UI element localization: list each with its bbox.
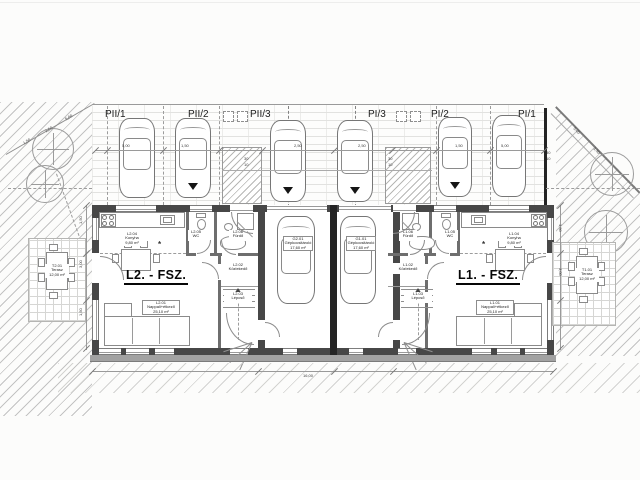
window bbox=[155, 348, 174, 355]
terrace-door-opening-l2 bbox=[92, 253, 99, 283]
dim-label: 2,50 bbox=[294, 143, 302, 148]
chair bbox=[49, 292, 58, 299]
entry-walkway-left bbox=[222, 147, 262, 204]
party-wall-center bbox=[330, 205, 337, 355]
door-threshold bbox=[230, 210, 253, 211]
terrace-label-t1: T1.01 Terasz 12,00 m² bbox=[575, 268, 599, 282]
partition bbox=[218, 256, 221, 264]
lamp-symbol: * bbox=[482, 241, 485, 249]
window bbox=[116, 205, 156, 212]
chair bbox=[579, 248, 588, 255]
dim-label: 3,00 bbox=[558, 268, 563, 276]
window bbox=[92, 218, 99, 240]
stove-burner bbox=[533, 221, 538, 226]
window bbox=[283, 348, 297, 355]
room-label-hall-l1: L1.02 Közlekedő bbox=[392, 263, 424, 274]
room-name: Közlekedő bbox=[392, 267, 424, 271]
partition bbox=[214, 212, 217, 253]
dim-label: 2,50 bbox=[358, 143, 366, 148]
direction-arrow-icon bbox=[283, 187, 293, 194]
parking-bay-divider bbox=[490, 106, 491, 205]
paving-marker bbox=[223, 111, 234, 122]
stove-burner bbox=[109, 221, 114, 226]
direction-arrow-icon bbox=[188, 183, 198, 190]
dim-label: 1,50 bbox=[558, 224, 563, 232]
parking-bay-divider bbox=[219, 106, 220, 205]
room-label-kitchen-l1: L1.04 Konyha 9,80 m² bbox=[499, 232, 529, 246]
car-topview bbox=[492, 115, 526, 197]
car-windshield bbox=[342, 129, 368, 135]
room-name: WC bbox=[442, 234, 458, 238]
toilet-tank bbox=[196, 213, 206, 218]
room-area: 25,10 m² bbox=[477, 310, 513, 314]
stove-burner bbox=[109, 215, 114, 220]
room-label-living-l2: L2.01 Nappali+étkező 25,10 m² bbox=[142, 300, 180, 315]
dim-label: 1,50 bbox=[455, 143, 463, 148]
car-topview bbox=[337, 120, 373, 202]
sofa-cushion-line bbox=[511, 318, 512, 344]
car-topview-garage bbox=[340, 216, 376, 304]
room-area: 9,80 m² bbox=[499, 241, 529, 245]
boundary-wall-right bbox=[544, 108, 547, 205]
sofa-cushion-line bbox=[132, 318, 133, 344]
room-label-kitchen-l2: L2.04 Konyha 9,80 m² bbox=[117, 232, 147, 246]
parking-space-label-pi2: PI/2 bbox=[431, 109, 449, 120]
window bbox=[472, 348, 491, 355]
chair bbox=[153, 254, 160, 263]
window bbox=[547, 218, 554, 240]
parking-space-label-pii3: PII/3 bbox=[250, 109, 271, 120]
unit-label-l1: L1. - FSZ. bbox=[456, 268, 520, 285]
window bbox=[497, 348, 520, 355]
partition bbox=[425, 256, 428, 264]
dim-label: 1,50 bbox=[78, 216, 83, 224]
paving-marker bbox=[396, 111, 407, 122]
car-windshield bbox=[345, 226, 371, 233]
driveway-top-edge bbox=[92, 104, 544, 105]
terrain-hatch-bottom bbox=[58, 363, 640, 393]
kitchen-sink-basin bbox=[474, 217, 483, 223]
dim-chain-bottom bbox=[92, 371, 554, 372]
room-area: 17,60 m² bbox=[284, 246, 312, 250]
room-area: 9,80 m² bbox=[117, 241, 147, 245]
room-name: Fürdő bbox=[229, 234, 247, 238]
garage-side-door-opening bbox=[393, 320, 400, 340]
room-area: 25,10 m² bbox=[143, 310, 179, 314]
car-topview bbox=[438, 117, 472, 197]
partition bbox=[186, 253, 196, 256]
paving-marker bbox=[410, 111, 421, 122]
sofa-body bbox=[456, 316, 542, 346]
room-area: 12,00 m² bbox=[45, 273, 69, 277]
partition bbox=[388, 253, 408, 256]
parking-bay-divider bbox=[163, 106, 164, 205]
floor-plan-canvas: 1,50 1,50 5,00 5,00 1,50 30 10 PII/1 PII… bbox=[0, 0, 640, 480]
car-topview bbox=[119, 118, 155, 198]
car-cabin bbox=[496, 135, 522, 169]
tree-icon bbox=[590, 152, 634, 196]
chair bbox=[568, 277, 575, 286]
chair bbox=[68, 258, 75, 267]
parking-space-label-pii1: PII/1 bbox=[105, 109, 126, 120]
chair bbox=[579, 296, 588, 303]
tree-icon bbox=[32, 128, 74, 170]
room-name: Lépcső bbox=[224, 296, 252, 300]
setback-dashed-line bbox=[546, 188, 640, 189]
sofa-cushion-line bbox=[484, 318, 485, 344]
partition bbox=[218, 280, 221, 348]
car-cabin bbox=[442, 137, 468, 170]
room-label-stairs-l1: L1.03 Lépcső bbox=[404, 292, 432, 303]
car-windshield bbox=[275, 129, 301, 135]
window bbox=[190, 205, 212, 212]
footing-strip bbox=[90, 355, 556, 362]
garage-side-door-opening bbox=[258, 320, 265, 340]
partition bbox=[238, 253, 258, 256]
chair bbox=[598, 277, 605, 286]
car-topview bbox=[175, 118, 211, 198]
chair bbox=[38, 273, 45, 282]
car-topview bbox=[270, 120, 306, 202]
dim-label: 10 bbox=[388, 162, 392, 167]
dim-label: 30 bbox=[388, 156, 392, 161]
driveway-paving bbox=[92, 104, 544, 205]
dim-label: 10 bbox=[244, 162, 248, 167]
lamp-symbol: * bbox=[158, 241, 161, 249]
room-label-living-l1: L1.01 Nappali+étkező 25,10 m² bbox=[476, 300, 514, 315]
parking-bay-divider bbox=[436, 106, 437, 205]
toilet-tank bbox=[441, 213, 451, 218]
room-area: 12,00 m² bbox=[575, 277, 599, 281]
car-windshield bbox=[497, 124, 521, 130]
parking-space-label-pii2: PII/2 bbox=[188, 109, 209, 120]
dim-chain-left bbox=[86, 205, 87, 350]
window bbox=[349, 348, 363, 355]
stair-guard-line bbox=[388, 286, 425, 287]
car-topview-garage bbox=[277, 216, 315, 304]
direction-arrow-icon bbox=[450, 182, 460, 189]
chair bbox=[68, 273, 75, 282]
partition bbox=[450, 253, 460, 256]
car-windshield bbox=[124, 127, 150, 133]
car-windshield bbox=[180, 127, 206, 133]
dim-label: 5,00 bbox=[501, 143, 509, 148]
chair bbox=[598, 262, 605, 271]
garage-door-leaf bbox=[339, 209, 391, 210]
car-windshield bbox=[443, 126, 467, 132]
window bbox=[489, 205, 529, 212]
room-name: WC bbox=[188, 234, 204, 238]
direction-arrow-icon bbox=[350, 187, 360, 194]
sofa-body bbox=[104, 316, 190, 346]
unit-label-l2: L2. - FSZ. bbox=[124, 268, 188, 285]
dim-label: 1,50 bbox=[181, 143, 189, 148]
terrace-label-t2: T2.01 Terasz 12,00 m² bbox=[45, 264, 69, 278]
stove-burner bbox=[102, 215, 107, 220]
dim-label: 1,50 bbox=[78, 308, 83, 316]
chair bbox=[38, 258, 45, 267]
dim-chain-parking-2 bbox=[222, 170, 432, 171]
room-name: Lépcső bbox=[404, 296, 432, 300]
window bbox=[99, 348, 121, 355]
car-windshield bbox=[282, 226, 310, 233]
chair bbox=[49, 244, 58, 251]
stove-burner bbox=[102, 221, 107, 226]
scan-artifact-line bbox=[0, 2, 640, 3]
stove-burner bbox=[539, 215, 544, 220]
door-threshold bbox=[393, 210, 416, 211]
stair-guard-line bbox=[221, 286, 258, 287]
room-label-garage-g1: G1.01 Gépkocsitároló 17,60 m² bbox=[346, 236, 376, 251]
window bbox=[525, 348, 547, 355]
garage-door-leaf bbox=[267, 206, 327, 207]
room-name: Fürdő bbox=[399, 234, 417, 238]
dim-label: 30 bbox=[244, 156, 248, 161]
kitchen-sink-basin bbox=[163, 217, 172, 223]
dim-label: 16,00 bbox=[303, 373, 313, 378]
garage-door-leaf bbox=[267, 209, 327, 210]
dim-label: 3,00 bbox=[78, 260, 83, 268]
dim-label: 5,00 bbox=[122, 143, 130, 148]
sofa-cushion-line bbox=[159, 318, 160, 344]
stove-burner bbox=[533, 215, 538, 220]
chair bbox=[486, 254, 493, 263]
window bbox=[434, 205, 456, 212]
chair bbox=[568, 262, 575, 271]
window bbox=[126, 348, 149, 355]
setback-dashed-line bbox=[8, 188, 92, 189]
room-area: 17,60 m² bbox=[347, 246, 375, 250]
tree-icon bbox=[26, 165, 64, 203]
room-name: Közlekedő bbox=[222, 267, 254, 271]
stove-burner bbox=[539, 221, 544, 226]
room-label-hall-l2: L2.02 Közlekedő bbox=[222, 263, 254, 274]
parking-space-label-pi1: PI/1 bbox=[518, 109, 536, 120]
window bbox=[92, 300, 99, 340]
paving-marker bbox=[237, 111, 248, 122]
parking-bay-divider bbox=[107, 106, 108, 205]
garage-door-leaf bbox=[339, 206, 391, 207]
parking-space-label-pi3: PI/3 bbox=[368, 109, 386, 120]
room-label-garage-g2: G2.01 Gépkocsitároló 17,60 m² bbox=[283, 236, 313, 251]
room-label-stairs-l2: L2.03 Lépcső bbox=[224, 292, 252, 303]
